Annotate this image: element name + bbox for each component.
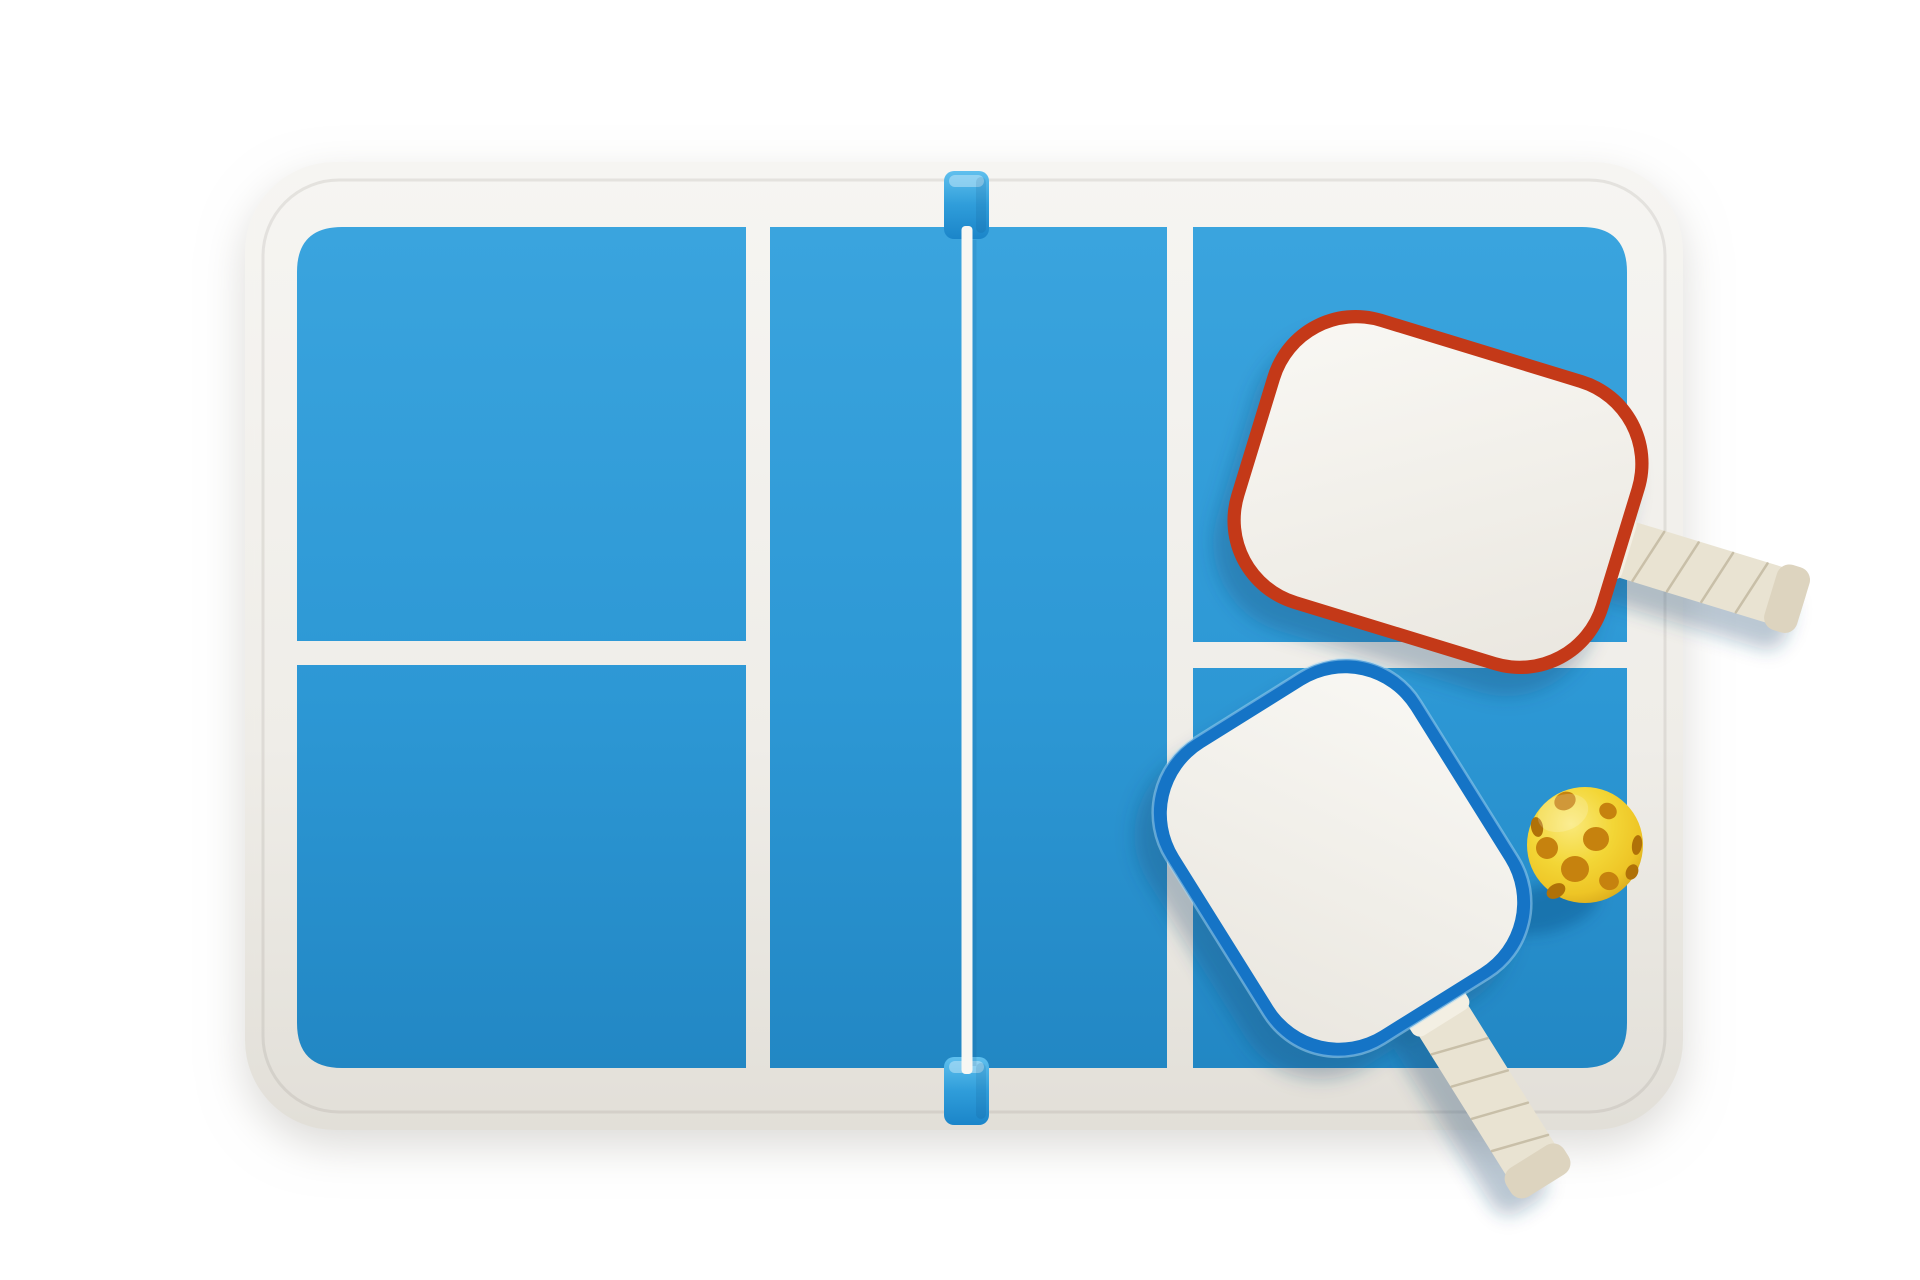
left-service-box-bottom: [297, 665, 746, 1068]
pickleball: [1527, 787, 1643, 903]
net-line-tape: [962, 226, 973, 1074]
net-line-shadow: [973, 240, 977, 1066]
net-line: [962, 226, 977, 1074]
clip-shade: [976, 1063, 986, 1119]
pickleball-scene: [0, 0, 1920, 1280]
left-service-box-top: [297, 227, 746, 641]
pickleball-court-render: [0, 0, 1920, 1280]
clip-shade: [976, 177, 986, 233]
